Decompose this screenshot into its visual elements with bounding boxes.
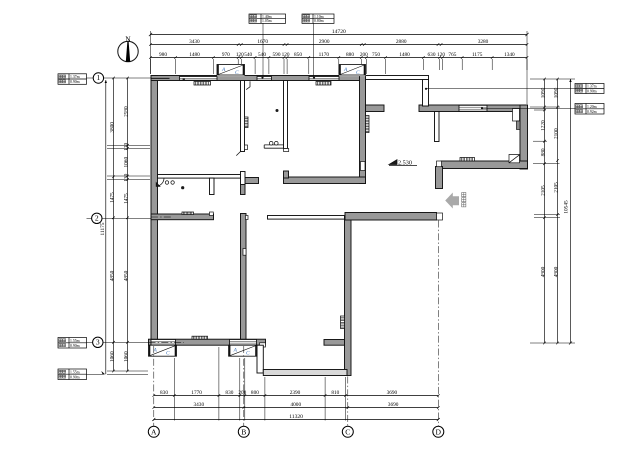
svg-text:10545: 10545 (564, 200, 570, 214)
svg-text:3430: 3430 (194, 402, 205, 408)
svg-text:1.37m: 1.37m (70, 75, 80, 79)
svg-text:4900: 4900 (554, 266, 560, 277)
svg-text:540: 540 (258, 52, 266, 58)
svg-text:2100: 2100 (554, 128, 560, 139)
svg-text:1.55m: 1.55m (70, 339, 80, 343)
svg-text:1340: 1340 (504, 52, 515, 58)
svg-text:830: 830 (160, 390, 168, 396)
svg-text:0.90m: 0.90m (70, 80, 80, 84)
svg-text:0.80m: 0.80m (314, 19, 324, 23)
svg-text:C: C (166, 351, 170, 357)
svg-text:130: 130 (124, 173, 130, 181)
svg-text:3690: 3690 (387, 390, 398, 396)
svg-text:1060: 1060 (124, 351, 130, 362)
svg-text:830: 830 (225, 390, 233, 396)
svg-text:2: 2 (95, 214, 99, 223)
svg-text:C: C (356, 70, 360, 76)
svg-text:1170: 1170 (319, 52, 330, 58)
svg-text:750: 750 (372, 52, 380, 58)
svg-text:B: B (241, 427, 246, 436)
svg-text:3280: 3280 (478, 39, 489, 45)
svg-text:850: 850 (294, 52, 302, 58)
svg-text:1060: 1060 (110, 351, 116, 362)
svg-text:1.55m: 1.55m (70, 370, 80, 374)
svg-text:1475: 1475 (124, 193, 130, 204)
svg-text:120: 120 (437, 52, 445, 58)
svg-text:2590: 2590 (124, 106, 130, 117)
svg-text:D: D (436, 427, 442, 436)
svg-text:A: A (153, 348, 158, 354)
svg-text:1060: 1060 (124, 157, 130, 168)
svg-text:0.92m: 0.92m (587, 110, 597, 114)
svg-text:765: 765 (448, 52, 456, 58)
svg-text:A: A (151, 427, 157, 436)
svg-text:1.37m: 1.37m (587, 85, 597, 89)
svg-text:1175: 1175 (472, 52, 483, 58)
svg-text:2880: 2880 (396, 39, 407, 45)
svg-text:A: A (233, 348, 238, 354)
svg-text:C: C (246, 351, 250, 357)
svg-text:0.90m: 0.90m (70, 344, 80, 348)
svg-text:4850: 4850 (110, 270, 116, 281)
svg-text:2900: 2900 (319, 39, 330, 45)
svg-text:1770: 1770 (191, 390, 202, 396)
svg-text:540: 540 (244, 52, 252, 58)
svg-text:2390: 2390 (290, 390, 301, 396)
svg-text:880: 880 (541, 148, 547, 156)
svg-text:1220: 1220 (541, 120, 547, 131)
svg-text:970: 970 (222, 52, 230, 58)
svg-text:120: 120 (124, 142, 130, 150)
svg-text:1: 1 (97, 73, 101, 82)
svg-text:0.90m: 0.90m (70, 375, 80, 379)
svg-text:1475: 1475 (110, 192, 116, 203)
svg-text:C: C (235, 70, 239, 76)
svg-text:3430: 3430 (189, 39, 200, 45)
svg-text:120: 120 (282, 52, 290, 58)
svg-text:C: C (345, 427, 350, 436)
svg-text:1090: 1090 (541, 87, 547, 98)
svg-text:1.05m: 1.05m (262, 19, 272, 23)
svg-text:N: N (125, 35, 131, 44)
svg-text:1.20m: 1.20m (587, 105, 597, 109)
svg-text:0.90m: 0.90m (587, 89, 597, 93)
svg-text:200: 200 (238, 390, 246, 396)
svg-text:2105: 2105 (541, 185, 547, 196)
svg-text:A: A (343, 67, 348, 73)
svg-text:810: 810 (331, 390, 339, 396)
svg-text:1480: 1480 (189, 52, 200, 58)
svg-text:590: 590 (273, 52, 281, 58)
svg-text:3800: 3800 (109, 122, 115, 133)
svg-text:2105: 2105 (554, 182, 560, 193)
svg-text:3690: 3690 (388, 402, 399, 408)
svg-text:11320: 11320 (289, 414, 303, 420)
svg-text:120: 120 (236, 52, 244, 58)
svg-text:1090: 1090 (554, 87, 560, 98)
svg-text:800: 800 (251, 390, 259, 396)
svg-text:4850: 4850 (124, 270, 130, 281)
svg-text:630: 630 (428, 52, 436, 58)
svg-text:3: 3 (96, 338, 100, 347)
svg-text:880: 880 (346, 52, 354, 58)
svg-text:200: 200 (360, 52, 368, 58)
svg-text:1480: 1480 (399, 52, 410, 58)
svg-text:4000: 4000 (291, 402, 302, 408)
svg-text:14720: 14720 (332, 29, 346, 35)
svg-text:A: A (221, 67, 226, 73)
svg-text:11175: 11175 (100, 222, 106, 235)
svg-text:4900: 4900 (541, 266, 547, 277)
svg-text:980: 980 (159, 52, 167, 58)
